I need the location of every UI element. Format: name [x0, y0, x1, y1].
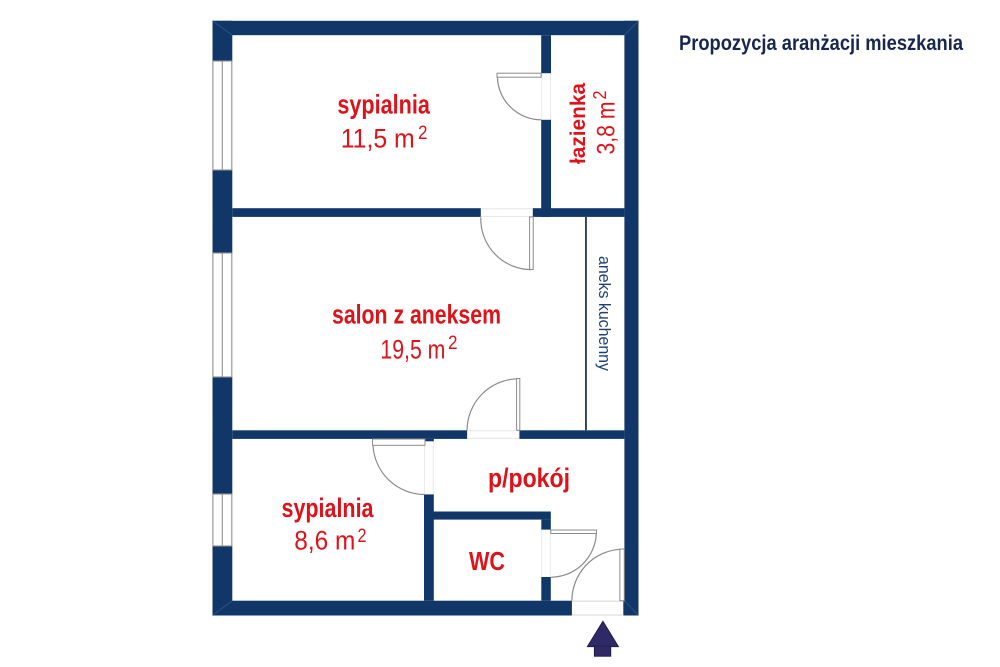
svg-text:19,5 m: 19,5 m — [380, 334, 445, 364]
svg-text:2: 2 — [358, 525, 367, 547]
svg-text:2: 2 — [589, 91, 610, 100]
svg-text:Propozycja aranżacji mieszkani: Propozycja aranżacji mieszkania — [679, 32, 963, 55]
svg-text:salon z aneksem: salon z aneksem — [332, 300, 501, 330]
svg-text:8,6 m: 8,6 m — [294, 525, 355, 555]
svg-text:2: 2 — [448, 332, 458, 354]
svg-text:sypialnia: sypialnia — [337, 90, 430, 120]
svg-text:2: 2 — [418, 122, 428, 144]
svg-text:WC: WC — [469, 546, 505, 576]
svg-text:sypialnia: sypialnia — [282, 493, 375, 523]
svg-text:łazienka: łazienka — [566, 82, 590, 164]
svg-text:p/pokój: p/pokój — [488, 463, 570, 493]
svg-text:aneks kuchenny: aneks kuchenny — [595, 256, 614, 371]
svg-text:3,8 m: 3,8 m — [593, 102, 621, 155]
svg-text:11,5 m: 11,5 m — [341, 124, 415, 154]
